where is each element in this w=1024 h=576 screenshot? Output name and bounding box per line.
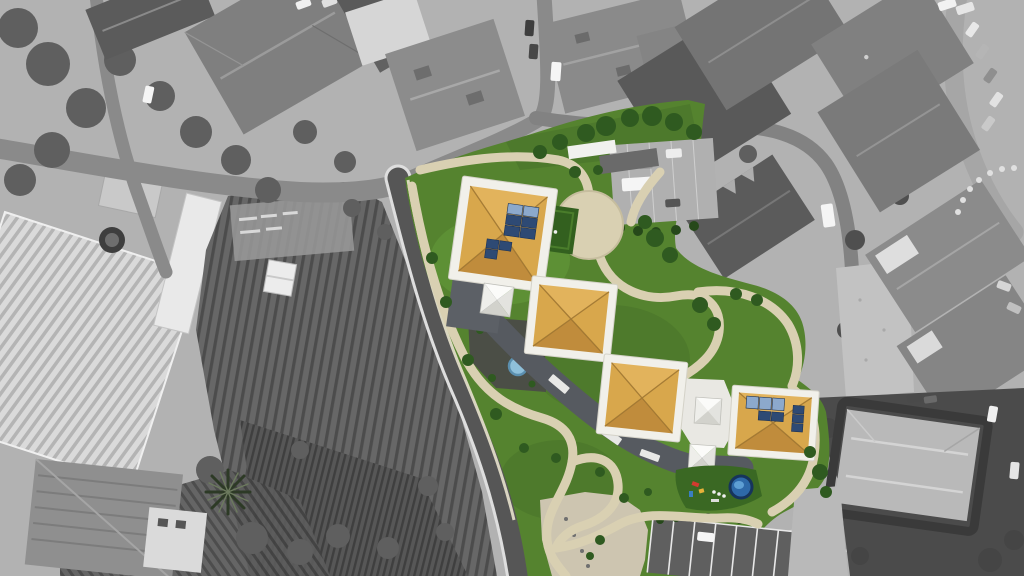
aerial-photo-canvas — [0, 0, 1024, 576]
palm-tree — [206, 470, 250, 514]
villa-southeast — [827, 401, 989, 533]
driveway-ramp — [788, 486, 848, 576]
aerial-photograph — [0, 0, 1024, 576]
site-parking-lot — [609, 138, 718, 225]
pavilion-3 — [596, 354, 688, 442]
pavilion-1 — [448, 176, 558, 292]
pavilion-2 — [524, 276, 618, 363]
skylight-pyramid-b — [694, 397, 722, 425]
van-white-north — [550, 62, 561, 82]
skylight-pyramid-a — [480, 283, 514, 317]
car-in-stall — [697, 532, 715, 543]
